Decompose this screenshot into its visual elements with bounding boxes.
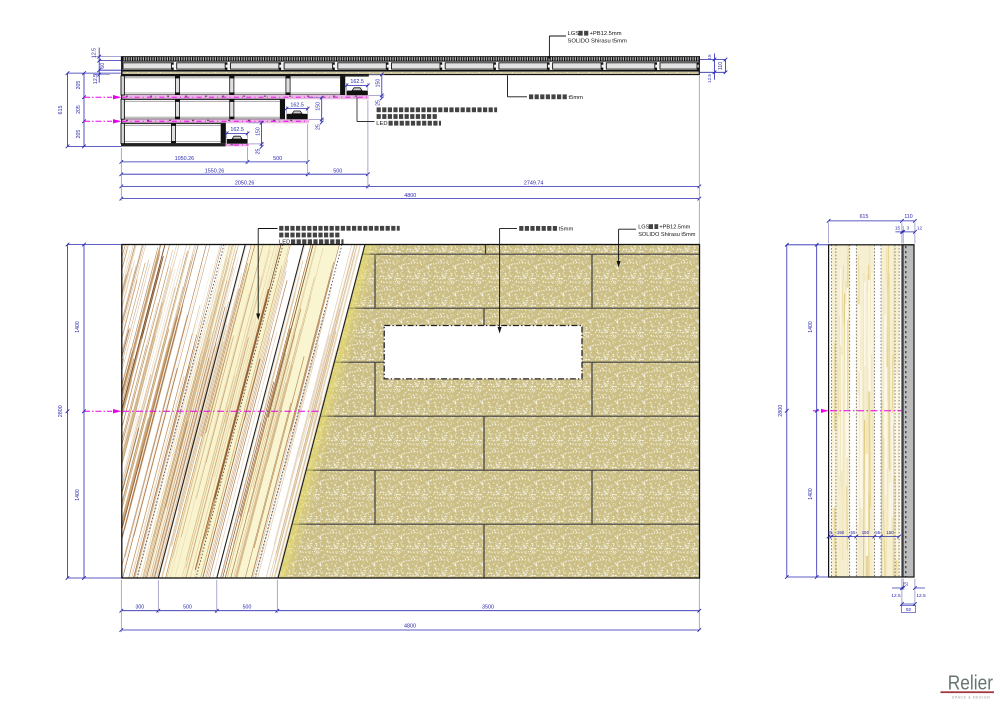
svg-text:300: 300 bbox=[135, 604, 144, 610]
svg-text:92: 92 bbox=[906, 607, 912, 613]
svg-text:LED: LED bbox=[376, 121, 387, 127]
svg-text:150: 150 bbox=[316, 102, 322, 111]
svg-text:150: 150 bbox=[837, 530, 845, 535]
svg-text:60: 60 bbox=[100, 63, 106, 69]
svg-text:+PB12.5mm: +PB12.5mm bbox=[590, 31, 622, 37]
svg-text:LED: LED bbox=[279, 240, 290, 246]
svg-text:4800: 4800 bbox=[404, 193, 416, 199]
svg-text:500: 500 bbox=[333, 168, 342, 174]
svg-text:SPACE & DESIGN: SPACE & DESIGN bbox=[952, 695, 991, 699]
svg-text:55: 55 bbox=[851, 530, 856, 535]
svg-text:2800: 2800 bbox=[778, 405, 784, 417]
svg-text:1400: 1400 bbox=[75, 489, 81, 501]
svg-text:t5mm: t5mm bbox=[559, 227, 574, 233]
svg-text:615: 615 bbox=[860, 214, 869, 220]
svg-text:55: 55 bbox=[875, 530, 880, 535]
svg-text:3500: 3500 bbox=[482, 604, 494, 610]
svg-text:12.5: 12.5 bbox=[916, 593, 926, 599]
svg-text:25: 25 bbox=[255, 149, 261, 155]
svg-text:615: 615 bbox=[58, 106, 64, 115]
svg-text:162.5: 162.5 bbox=[230, 127, 244, 133]
svg-text:1400: 1400 bbox=[808, 488, 814, 500]
svg-text:12.5: 12.5 bbox=[92, 48, 98, 58]
svg-text:25: 25 bbox=[828, 530, 833, 535]
svg-text:2800: 2800 bbox=[58, 405, 64, 417]
svg-text:Relier: Relier bbox=[948, 671, 993, 694]
svg-text:500: 500 bbox=[243, 604, 252, 610]
svg-text:SOLIDO Shirasu t5mm: SOLIDO Shirasu t5mm bbox=[568, 39, 627, 45]
svg-text:150: 150 bbox=[255, 127, 261, 136]
svg-text:1400: 1400 bbox=[75, 321, 81, 333]
svg-text:t5mm: t5mm bbox=[569, 95, 584, 101]
svg-text:110: 110 bbox=[718, 62, 724, 70]
svg-text:12.5: 12.5 bbox=[707, 74, 712, 83]
svg-text:1400: 1400 bbox=[808, 321, 814, 333]
svg-text:12.5: 12.5 bbox=[891, 593, 901, 599]
svg-text:12: 12 bbox=[917, 226, 923, 231]
svg-text:205: 205 bbox=[76, 130, 82, 139]
svg-text:150: 150 bbox=[886, 530, 894, 535]
svg-text:1050.26: 1050.26 bbox=[175, 156, 195, 162]
svg-text:110: 110 bbox=[904, 214, 912, 220]
svg-text:25: 25 bbox=[316, 124, 322, 130]
svg-text:25: 25 bbox=[376, 100, 382, 106]
svg-text:LGS: LGS bbox=[568, 31, 580, 37]
svg-text:15: 15 bbox=[895, 226, 901, 231]
svg-text:+PB12.5mm: +PB12.5mm bbox=[659, 225, 690, 231]
svg-text:150: 150 bbox=[376, 79, 382, 88]
svg-text:162.5: 162.5 bbox=[350, 79, 364, 85]
svg-text:162.5: 162.5 bbox=[290, 102, 304, 108]
svg-text:12.5: 12.5 bbox=[93, 74, 99, 84]
svg-text:205: 205 bbox=[76, 105, 82, 114]
svg-text:2749.74: 2749.74 bbox=[524, 181, 544, 187]
svg-text:2050.26: 2050.26 bbox=[235, 181, 255, 187]
svg-text:SOLIDO Shirasu t5mm: SOLIDO Shirasu t5mm bbox=[638, 232, 696, 238]
svg-text:4800: 4800 bbox=[404, 624, 416, 630]
svg-text:500: 500 bbox=[273, 156, 282, 162]
svg-text:(5): (5) bbox=[903, 582, 909, 587]
svg-text:205: 205 bbox=[76, 81, 82, 90]
svg-text:15: 15 bbox=[707, 54, 712, 60]
svg-text:LGS: LGS bbox=[638, 225, 649, 231]
svg-text:1550.26: 1550.26 bbox=[205, 168, 225, 174]
svg-text:150: 150 bbox=[862, 530, 870, 535]
svg-text:500: 500 bbox=[183, 604, 192, 610]
